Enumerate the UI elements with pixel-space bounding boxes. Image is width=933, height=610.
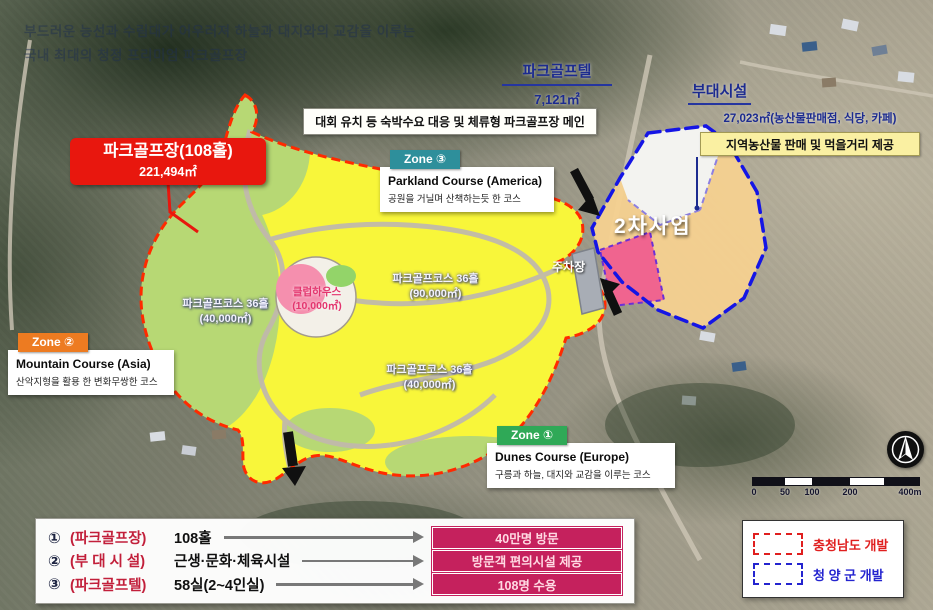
blue-dashed-swatch-icon [753, 563, 803, 585]
annex-area-text: 27,023㎡(농산물판매점, 식당, 카페) [694, 110, 926, 126]
zone-3-callout: Zone ③ Parkland Course (America) 공원을 거닐며… [380, 150, 554, 212]
row2-result-badge: 방문객 편의시설 제공 [432, 550, 622, 572]
zone-1-name: Dunes Course (Europe) [495, 450, 667, 464]
scale-bar-segments [752, 477, 920, 486]
watermark-line1: 부드러운 능선과 수림대가 어우러져 하늘과 대지와의 교감을 이루는 [24, 20, 416, 40]
zone-2-body: Mountain Course (Asia) 산악지형을 활용 한 변화무쌍한 … [8, 350, 174, 395]
legend-row-cheongyang: 청 양 군 개발 [753, 563, 893, 585]
row3-number: ③ [48, 575, 70, 593]
legend-row-chungnam: 충청남도 개발 [753, 533, 893, 555]
zone-3-tag: Zone ③ [390, 150, 460, 169]
golftel-callout: 파크골프텔 7,121㎡ [502, 60, 612, 108]
row2-name: (부 대 시 설) [70, 550, 174, 571]
legend-label-cheongyang: 청 양 군 개발 [813, 565, 884, 584]
row1-value: 108홀 [174, 527, 212, 548]
zone-1-callout: Zone ① Dunes Course (Europe) 구릉과 하늘, 대지와… [487, 426, 675, 488]
annex-callout: 부대시설 [688, 80, 751, 105]
zone-2-name: Mountain Course (Asia) [16, 357, 166, 371]
annex-note-box: 지역농산물 판매 및 먹을거리 제공 [700, 132, 920, 156]
zone-3-body: Parkland Course (America) 공원을 거닐며 산책하는듯 … [380, 167, 554, 212]
row3-arrow-icon [276, 583, 414, 586]
summary-table: ① (파크골프장) 108홀 40만명 방문 ② (부 대 시 설) 근생·문화… [35, 518, 635, 604]
course-center-label: 파크골프코스 36홀 (90,000㎡) [368, 272, 503, 302]
red-dashed-swatch-icon [753, 533, 803, 555]
row2-arrow-icon [302, 560, 414, 563]
golftel-note-box: 대회 유치 등 숙박수요 대응 및 체류형 파크골프장 메인 [303, 108, 597, 135]
zone-3-desc: 공원을 거닐며 산책하는듯 한 코스 [388, 191, 546, 205]
zone-2-callout: Zone ② Mountain Course (Asia) 산악지형을 활용 한… [8, 333, 174, 395]
row2-value: 근생·문화·체육시설 [174, 550, 290, 571]
zone-1-desc: 구릉과 하늘, 대지와 교감을 이루는 코스 [495, 467, 667, 481]
zone-2-tag: Zone ② [18, 333, 88, 352]
compass-needle [887, 431, 924, 468]
row1-arrow-icon [224, 536, 414, 539]
row3-value: 58실(2~4인실) [174, 574, 264, 595]
scale-bar-ticks: 0 50 100 200 400m [752, 487, 924, 499]
row1-name: (파크골프장) [70, 527, 174, 548]
phase2-label: 2차사업 [614, 210, 692, 240]
row1-result-badge: 40만명 방문 [432, 527, 622, 549]
summary-row-1: ① (파크골프장) 108홀 40만명 방문 [48, 527, 622, 549]
course-west-label: 파크골프코스 36홀 (40,000㎡) [158, 297, 293, 327]
main-course-callout: 파크골프장(108홀) 221,494㎡ [70, 138, 266, 185]
row3-result-badge: 108명 수용 [432, 573, 622, 595]
clubhouse-label: 클럽하우스 (10,000㎡) [274, 286, 360, 313]
row1-number: ① [48, 529, 70, 547]
zone-3-name: Parkland Course (America) [388, 174, 546, 188]
scale-bar: 0 50 100 200 400m [752, 477, 924, 499]
golftel-area: 7,121㎡ [502, 89, 612, 108]
zone-1-body: Dunes Course (Europe) 구릉과 하늘, 대지와 교감을 이루… [487, 443, 675, 488]
zone-1-tag: Zone ① [497, 426, 567, 445]
watermark-line2: 국내 최대의 청정 프리미엄 파크골프장 [24, 44, 248, 64]
summary-row-3: ③ (파크골프텔) 58실(2~4인실) 108명 수용 [48, 573, 622, 595]
plan-map-canvas: 부드러운 능선과 수림대가 어우러져 하늘과 대지와의 교감을 이루는 국내 최… [0, 0, 933, 610]
summary-row-2: ② (부 대 시 설) 근생·문화·체육시설 방문객 편의시설 제공 [48, 550, 622, 572]
course-south-label: 파크골프코스 36홀 (40,000㎡) [362, 363, 497, 393]
zone-2-desc: 산악지형을 활용 한 변화무쌍한 코스 [16, 374, 166, 388]
main-course-area: 221,494㎡ [76, 161, 260, 180]
row3-name: (파크골프텔) [70, 574, 174, 595]
parking-label: 주차장 [552, 258, 585, 275]
golftel-name: 파크골프텔 [502, 60, 612, 86]
main-course-name: 파크골프장(108홀) [76, 142, 260, 161]
compass-north-icon [887, 431, 924, 468]
row2-number: ② [48, 552, 70, 570]
legend-label-chungnam: 충청남도 개발 [813, 535, 888, 554]
annex-name: 부대시설 [688, 80, 751, 105]
legend-box: 충청남도 개발 청 양 군 개발 [742, 520, 904, 598]
